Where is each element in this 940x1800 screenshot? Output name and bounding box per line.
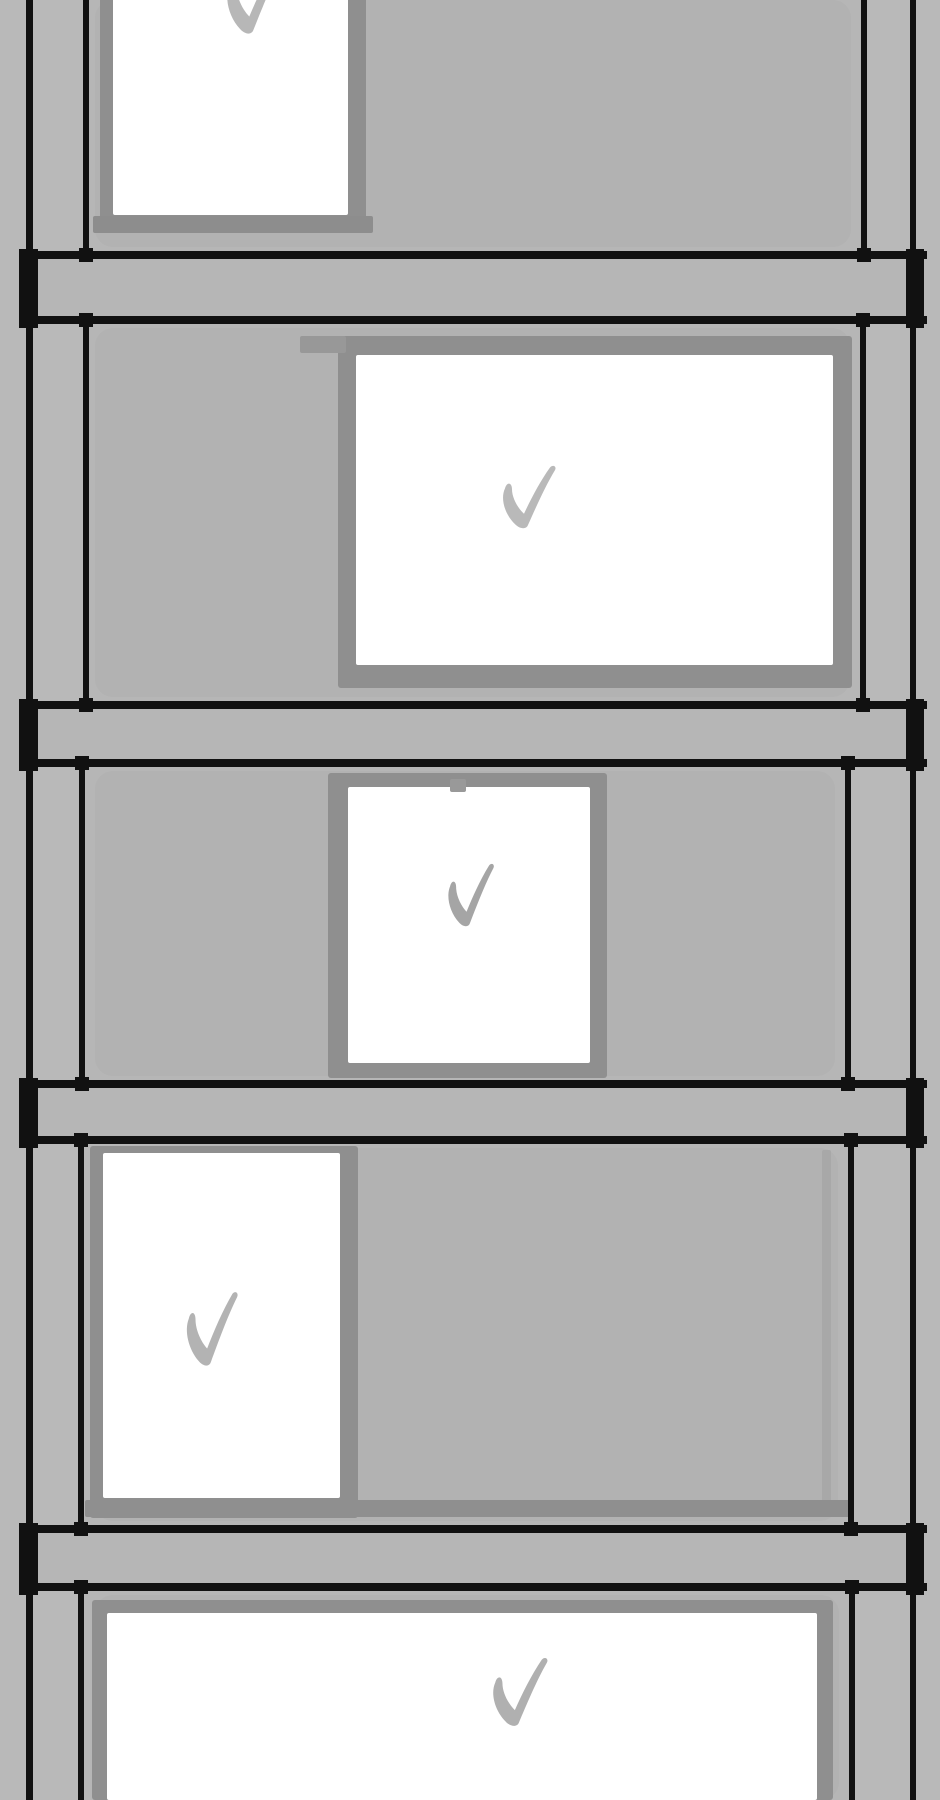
window-sill-band-floor-4: [85, 1500, 852, 1517]
checkmark-icon-floor-2: [498, 464, 558, 532]
column-line-left-inner-floor-2: [83, 316, 89, 709]
column-line-left-inner-floor-1: [83, 0, 89, 259]
slab-line-bottom-slab-4: [19, 1583, 927, 1591]
window-sill-band-floor-1: [93, 216, 373, 233]
slab-line-bottom-slab-2: [19, 759, 927, 767]
checkmark-icon-floor-3: [444, 862, 496, 930]
slab-band-slab-2: [33, 709, 910, 759]
slab-joint-nub-slab-4-1: [74, 1580, 88, 1594]
slab-bracket-right-slab-4: [906, 1523, 924, 1595]
slab-line-top-slab-4: [19, 1525, 927, 1533]
checkmark-icon-floor-1: [222, 0, 285, 38]
slab-joint-nub-slab-4-3: [845, 1580, 859, 1594]
slab-joint-nub-slab-2-0: [79, 698, 93, 712]
column-line-left-inner-floor-5: [78, 1583, 84, 1800]
column-line-right-inner-floor-1: [861, 0, 867, 259]
slab-joint-nub-slab-2-2: [856, 698, 870, 712]
slab-line-bottom-slab-1: [19, 316, 927, 324]
slab-bracket-left-slab-4: [19, 1523, 38, 1595]
slab-bracket-left-slab-3: [19, 1078, 38, 1148]
column-line-left-inner-floor-4: [78, 1136, 84, 1533]
column-line-left-inner-floor-3: [79, 759, 85, 1088]
slab-bracket-left-slab-1: [19, 249, 38, 328]
checkmark-icon-floor-5: [488, 1656, 550, 1730]
slab-band-slab-4: [33, 1533, 910, 1583]
slab-joint-nub-slab-4-0: [74, 1522, 88, 1536]
slab-bracket-right-slab-3: [906, 1078, 924, 1148]
wall-seam-line-floor-4: [822, 1150, 831, 1502]
slab-joint-nub-slab-2-1: [75, 756, 89, 770]
frame-overshoot-floor-2: [300, 336, 346, 353]
slab-joint-nub-slab-1-2: [857, 248, 871, 262]
slab-line-bottom-slab-3: [19, 1136, 927, 1144]
slab-joint-nub-slab-3-3: [844, 1133, 858, 1147]
checkmark-icon-floor-4: [182, 1290, 240, 1370]
slab-joint-nub-slab-3-0: [75, 1077, 89, 1091]
window-pane-floor-5[interactable]: [107, 1613, 817, 1800]
slab-joint-nub-slab-3-1: [74, 1133, 88, 1147]
slab-bracket-right-slab-1: [906, 249, 924, 328]
slab-joint-nub-slab-2-3: [841, 756, 855, 770]
slab-bracket-right-slab-2: [906, 699, 924, 771]
slab-joint-nub-slab-1-3: [856, 313, 870, 327]
window-pane-floor-2[interactable]: [356, 355, 833, 665]
slab-joint-nub-slab-4-2: [844, 1522, 858, 1536]
slab-line-top-slab-1: [19, 251, 927, 259]
column-line-right-inner-floor-4: [848, 1136, 854, 1533]
slab-band-slab-1: [33, 259, 910, 316]
facade-sketch: [0, 0, 940, 1800]
slab-joint-nub-slab-1-0: [79, 248, 93, 262]
slab-line-top-slab-2: [19, 701, 927, 709]
slab-joint-nub-slab-3-2: [841, 1077, 855, 1091]
column-line-right-inner-floor-2: [860, 316, 866, 709]
column-line-right-inner-floor-5: [849, 1583, 855, 1800]
slab-line-top-slab-3: [19, 1080, 927, 1088]
frame-tick-floor-3: [450, 779, 466, 792]
slab-bracket-left-slab-2: [19, 699, 38, 771]
slab-band-slab-3: [33, 1088, 910, 1136]
slab-joint-nub-slab-1-1: [79, 313, 93, 327]
column-line-right-inner-floor-3: [845, 759, 851, 1088]
